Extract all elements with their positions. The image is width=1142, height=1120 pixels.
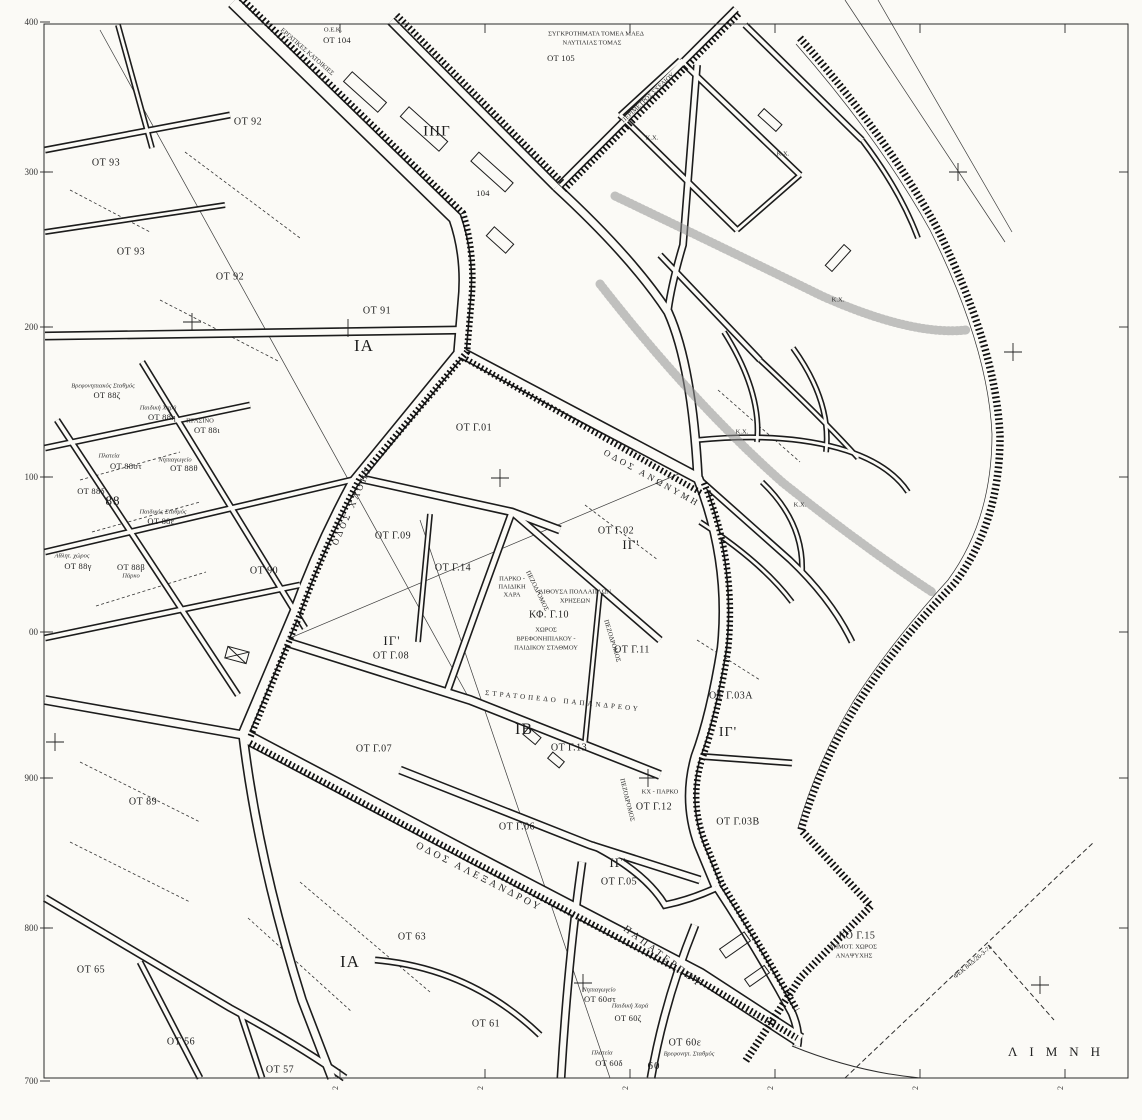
svg-text:2: 2 <box>331 1086 340 1090</box>
svg-text:2: 2 <box>766 1086 775 1090</box>
svg-text:2: 2 <box>911 1086 920 1090</box>
svg-text:200: 200 <box>25 322 39 332</box>
map-canvas: 22222240030020010000900800700 <box>0 0 1142 1120</box>
parcel-lines <box>70 152 800 1012</box>
street-network <box>45 2 918 1078</box>
svg-text:700: 700 <box>25 1076 39 1086</box>
crossed-building <box>225 646 249 663</box>
svg-text:100: 100 <box>25 472 39 482</box>
svg-text:2: 2 <box>1056 1086 1065 1090</box>
svg-text:2: 2 <box>621 1086 630 1090</box>
svg-text:00: 00 <box>29 627 39 637</box>
svg-text:2: 2 <box>476 1086 485 1090</box>
svg-text:800: 800 <box>25 923 39 933</box>
lake-shore-lines <box>792 44 1094 1078</box>
svg-text:400: 400 <box>25 17 39 27</box>
map-sheet: 22222240030020010000900800700 Ο.Ε.Κ.ΟΤ 1… <box>0 0 1142 1120</box>
svg-text:900: 900 <box>25 773 39 783</box>
vegetation-bands <box>600 196 966 592</box>
svg-text:300: 300 <box>25 167 39 177</box>
